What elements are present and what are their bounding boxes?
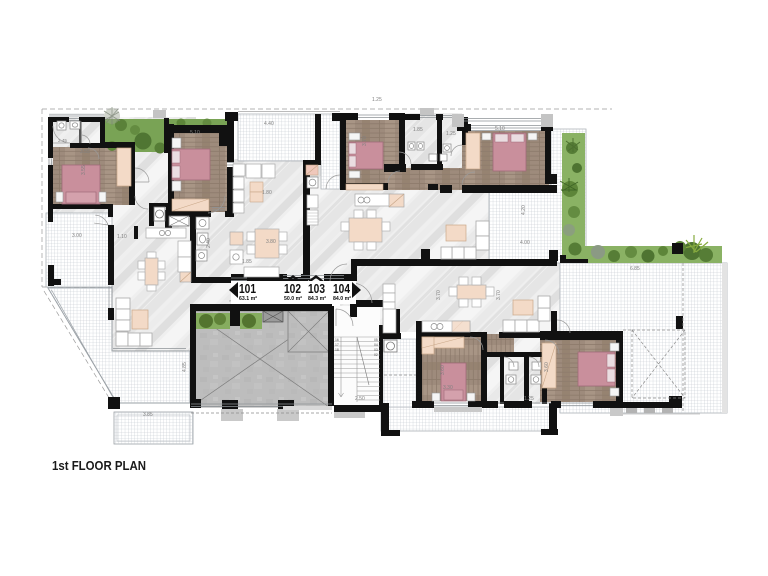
- svg-text:1.25: 1.25: [524, 396, 534, 402]
- svg-text:3.60: 3.60: [544, 362, 550, 372]
- svg-text:3.85: 3.85: [143, 412, 153, 418]
- svg-text:3.70: 3.70: [436, 290, 442, 300]
- svg-text:3.70: 3.70: [362, 136, 368, 146]
- svg-text:5.10: 5.10: [495, 126, 505, 132]
- svg-text:104: 104: [333, 282, 350, 296]
- svg-text:1.25: 1.25: [372, 97, 382, 103]
- svg-text:3.55: 3.55: [81, 165, 87, 175]
- svg-text:6.85: 6.85: [630, 266, 640, 272]
- svg-text:102: 102: [284, 282, 301, 296]
- svg-text:05: 05: [374, 338, 378, 342]
- svg-text:2.45: 2.45: [58, 138, 67, 143]
- svg-text:1.85: 1.85: [242, 259, 252, 265]
- svg-text:03: 03: [374, 348, 378, 352]
- svg-text:18: 18: [335, 348, 339, 352]
- svg-text:84.0 m²: 84.0 m²: [333, 295, 351, 302]
- svg-text:2.50: 2.50: [355, 396, 365, 402]
- svg-text:3.80: 3.80: [266, 239, 276, 245]
- svg-text:16: 16: [335, 338, 339, 342]
- svg-text:103: 103: [308, 282, 325, 296]
- svg-text:3.00: 3.00: [72, 233, 82, 239]
- svg-text:63.1 m²: 63.1 m²: [239, 295, 257, 302]
- svg-text:4.85: 4.85: [182, 362, 188, 372]
- svg-text:1.85: 1.85: [413, 127, 423, 133]
- svg-text:04: 04: [374, 343, 378, 347]
- svg-text:1.10: 1.10: [117, 234, 127, 240]
- svg-text:3.55: 3.55: [80, 149, 90, 155]
- svg-text:1.80: 1.80: [262, 190, 272, 196]
- svg-text:17: 17: [335, 343, 339, 347]
- svg-text:3.70: 3.70: [496, 290, 502, 300]
- svg-text:2.40: 2.40: [206, 238, 212, 248]
- svg-text:4.00: 4.00: [520, 240, 530, 246]
- svg-text:84.3 m²: 84.3 m²: [308, 295, 326, 302]
- svg-text:1st FLOOR PLAN: 1st FLOOR PLAN: [52, 458, 146, 473]
- svg-text:101: 101: [239, 282, 256, 296]
- svg-text:1.25: 1.25: [446, 131, 456, 137]
- svg-text:3.30: 3.30: [443, 385, 453, 391]
- svg-text:4.20: 4.20: [521, 205, 527, 215]
- svg-text:5.10: 5.10: [190, 130, 200, 136]
- svg-text:50.0 m²: 50.0 m²: [284, 295, 302, 302]
- svg-text:3.60: 3.60: [440, 365, 446, 375]
- svg-text:4.40: 4.40: [264, 121, 274, 127]
- svg-text:02: 02: [374, 353, 378, 357]
